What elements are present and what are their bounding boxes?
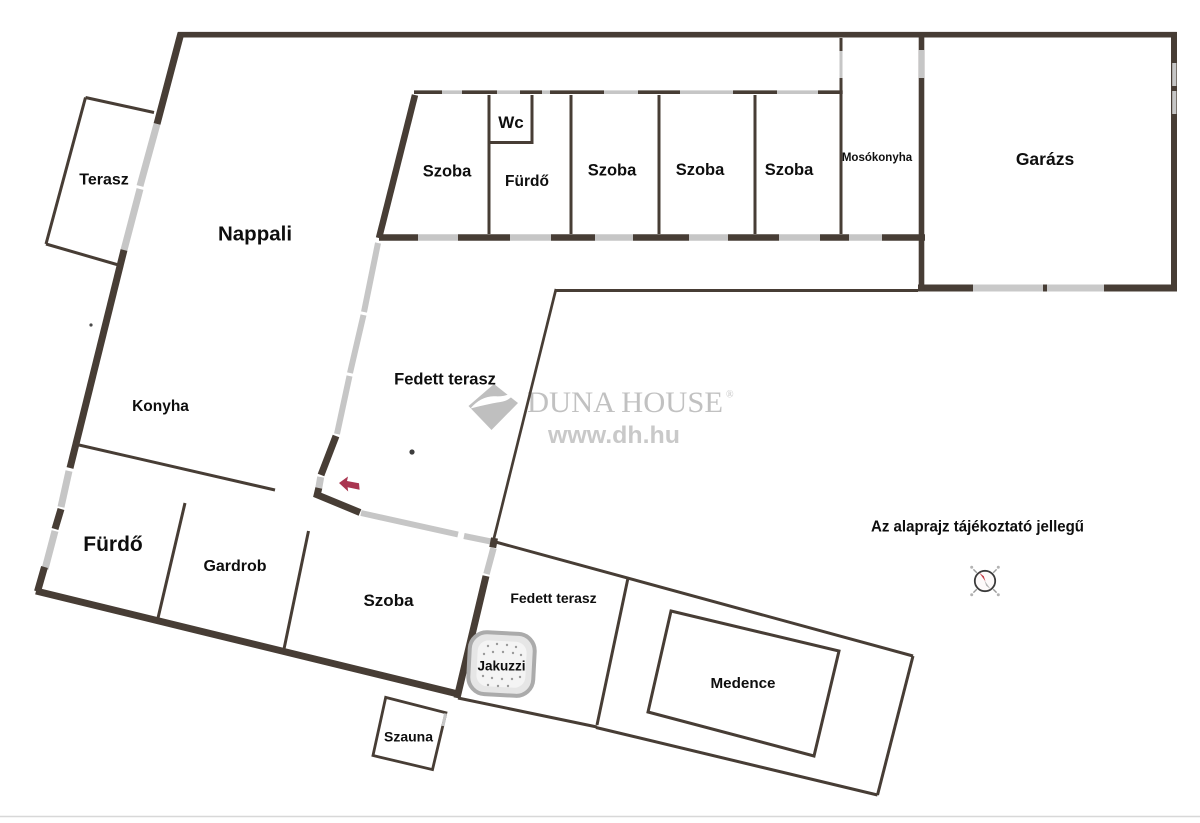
svg-text:Szoba: Szoba: [423, 163, 472, 181]
svg-text:Terasz: Terasz: [79, 172, 129, 189]
svg-text:Medence: Medence: [711, 675, 776, 692]
svg-text:Fedett terasz: Fedett terasz: [510, 590, 596, 606]
svg-text:Szoba: Szoba: [363, 591, 414, 610]
svg-text:Wc: Wc: [498, 113, 524, 132]
svg-text:Szoba: Szoba: [588, 162, 637, 180]
svg-text:Gardrob: Gardrob: [203, 558, 266, 575]
svg-text:DUNA HOUSE: DUNA HOUSE: [527, 386, 723, 419]
svg-text:www.dh.hu: www.dh.hu: [547, 422, 680, 449]
svg-text:Konyha: Konyha: [132, 398, 189, 415]
svg-text:Nappali: Nappali: [218, 223, 292, 246]
svg-text:Szoba: Szoba: [765, 161, 814, 179]
svg-text:®: ®: [726, 390, 734, 401]
svg-text:Fürdő: Fürdő: [83, 533, 142, 556]
svg-text:Fedett terasz: Fedett terasz: [394, 371, 496, 389]
svg-text:Garázs: Garázs: [1016, 149, 1075, 169]
svg-text:Fürdő: Fürdő: [505, 173, 549, 190]
svg-text:Jakuzzi: Jakuzzi: [477, 659, 525, 674]
svg-text:Mosókonyha: Mosókonyha: [842, 152, 913, 164]
svg-text:Szoba: Szoba: [676, 161, 725, 179]
svg-text:Az alaprajz tájékoztató jelleg: Az alaprajz tájékoztató jellegű: [871, 519, 1084, 536]
svg-text:Szauna: Szauna: [384, 729, 433, 745]
